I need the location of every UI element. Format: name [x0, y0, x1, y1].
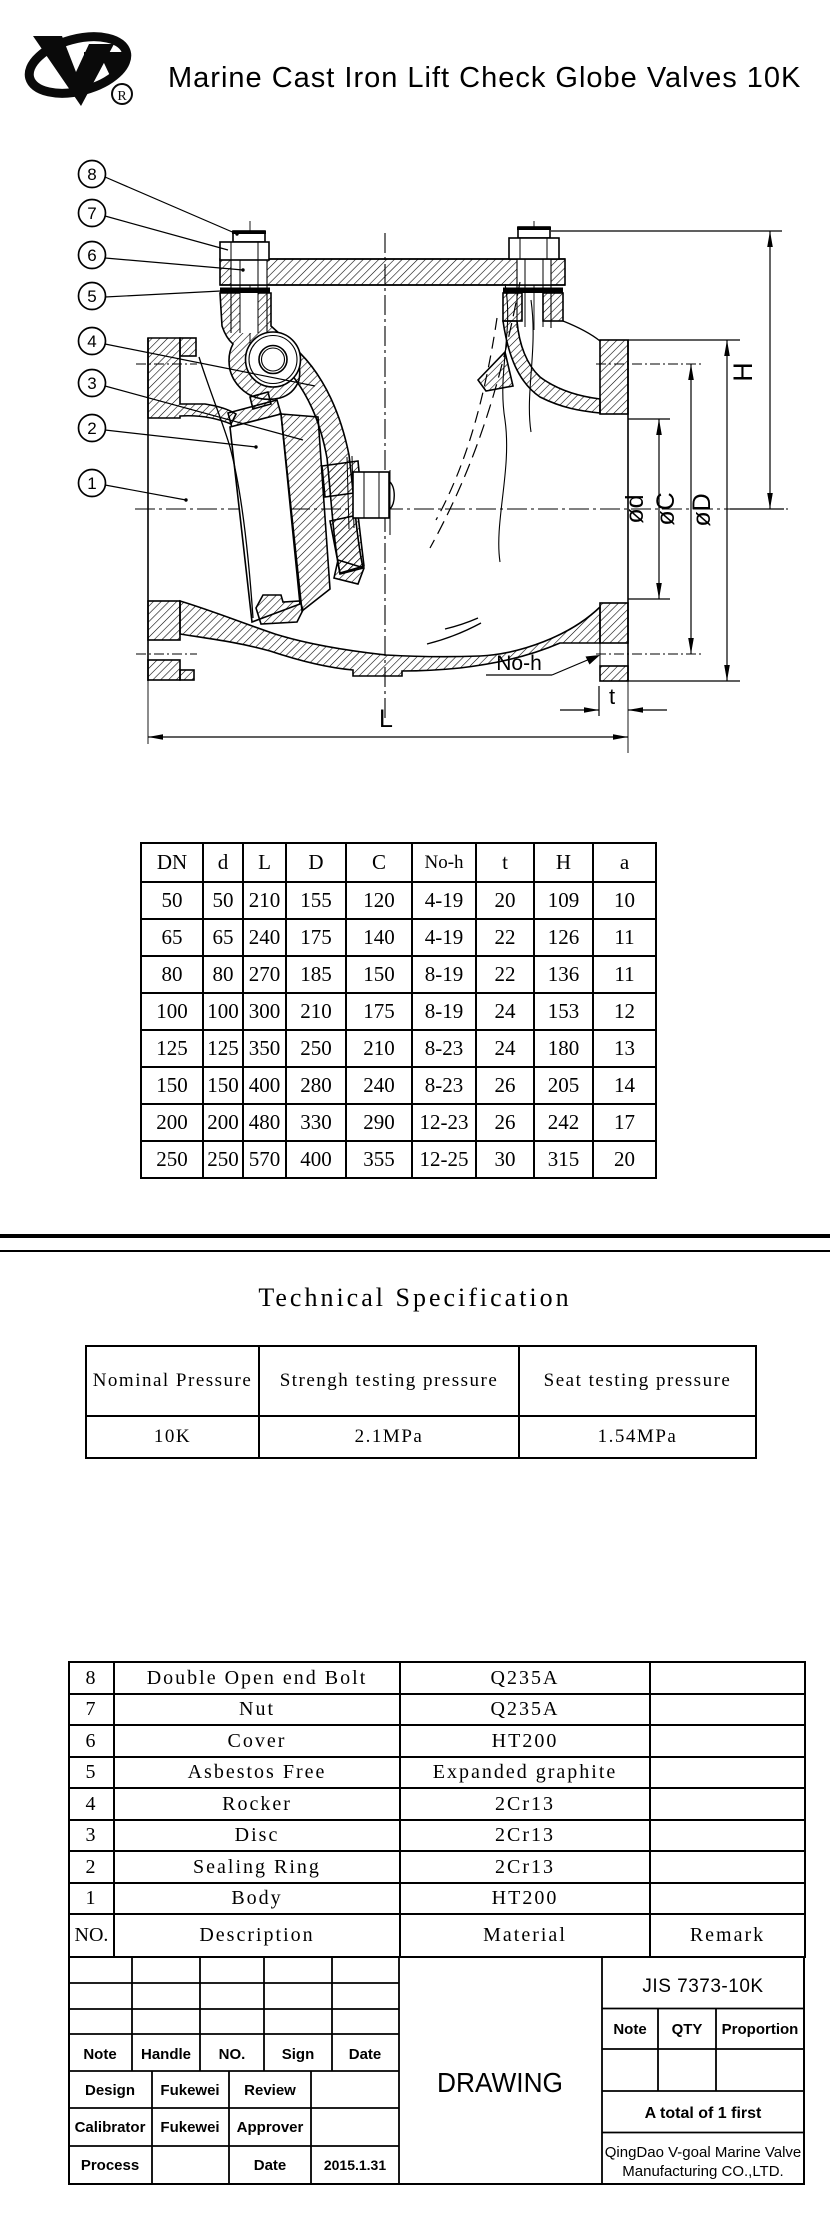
svg-text:Process: Process [81, 2157, 139, 2174]
svg-text:1: 1 [87, 474, 96, 493]
svg-text:Sign: Sign [282, 2046, 315, 2063]
svg-text:QTY: QTY [672, 2021, 703, 2038]
svg-text:4: 4 [87, 332, 96, 351]
svg-text:Date: Date [254, 2157, 287, 2174]
svg-text:6: 6 [87, 246, 96, 265]
svg-text:2015.1.31: 2015.1.31 [324, 2157, 386, 2173]
svg-text:Handle: Handle [141, 2046, 191, 2063]
svg-text:Note: Note [613, 2021, 646, 2038]
svg-text:H: H [728, 362, 758, 382]
svg-text:8: 8 [87, 165, 96, 184]
svg-text:Note: Note [83, 2046, 116, 2063]
svg-text:JIS 7373-10K: JIS 7373-10K [642, 1976, 763, 1997]
svg-text:No-h: No-h [496, 652, 542, 675]
svg-text:Manufacturing CO.,LTD.: Manufacturing CO.,LTD. [622, 2163, 783, 2180]
svg-text:ød: ød [621, 494, 649, 523]
svg-text:Review: Review [244, 2082, 296, 2099]
svg-text:NO.: NO. [219, 2046, 246, 2063]
svg-text:5: 5 [87, 287, 96, 306]
svg-text:Calibrator: Calibrator [75, 2119, 146, 2136]
svg-text:Approver: Approver [237, 2119, 304, 2136]
svg-text:A total of 1 first: A total of 1 first [645, 2105, 762, 2122]
svg-text:øC: øC [652, 492, 680, 525]
svg-text:t: t [609, 684, 615, 709]
svg-text:2: 2 [87, 419, 96, 438]
svg-text:DRAWING: DRAWING [437, 2067, 563, 2098]
svg-text:Fukewei: Fukewei [160, 2119, 219, 2136]
svg-text:7: 7 [87, 204, 96, 223]
svg-text:øD: øD [688, 493, 716, 526]
svg-text:L: L [379, 705, 393, 733]
svg-text:3: 3 [87, 374, 96, 393]
svg-text:Proportion: Proportion [722, 2021, 799, 2038]
svg-text:QingDao V-goal Marine Valve: QingDao V-goal Marine Valve [605, 2144, 802, 2161]
svg-text:Date: Date [349, 2046, 382, 2063]
svg-text:Design: Design [85, 2082, 135, 2099]
svg-text:Fukewei: Fukewei [160, 2082, 219, 2099]
